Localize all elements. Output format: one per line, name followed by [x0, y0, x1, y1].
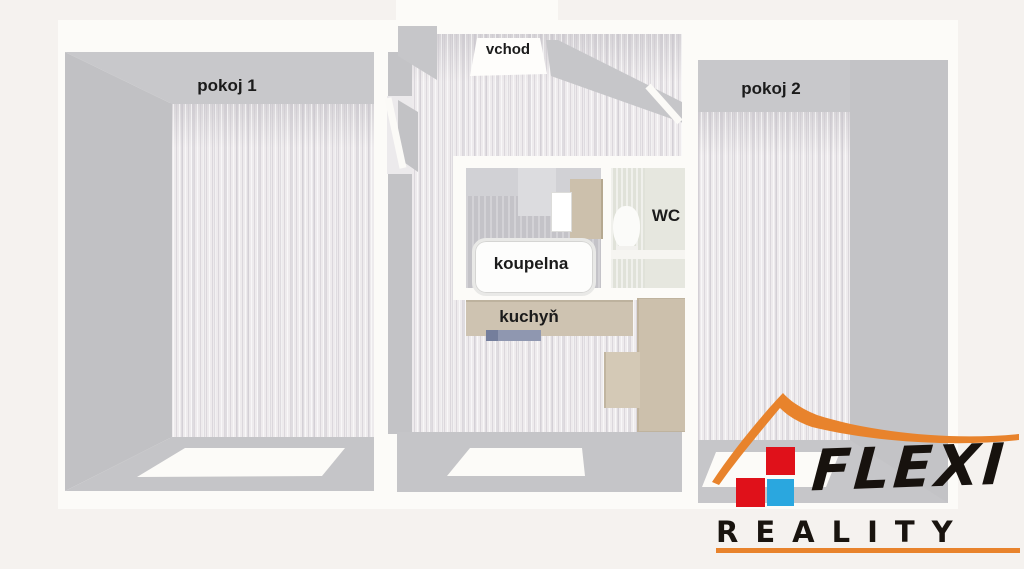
floor-plan-image: pokoj 1 pokoj 2 vchod koupelna WC kuchyň… [0, 0, 1024, 564]
hall-top-wall-right-of-door [546, 40, 686, 124]
logo-text-flexi: FLEXI [809, 432, 1009, 505]
flexi-reality-logo: FLEXI REALITY [690, 385, 1024, 564]
logo-square-blue [767, 479, 794, 506]
logo-square-red-top [766, 447, 795, 475]
pokoj1-left-wall [65, 52, 172, 491]
bathroom-cabinet [570, 179, 603, 239]
kitchen-window [447, 448, 585, 476]
kitchen-low-cabinet [604, 352, 640, 408]
washbasin [551, 192, 572, 232]
room-label-koupelna: koupelna [461, 254, 601, 274]
room-label-pokoj-1: pokoj 1 [157, 76, 297, 96]
room-label-wc: WC [636, 206, 696, 226]
room-label-kuchyn: kuchyň [459, 307, 599, 327]
room-label-vchod: vchod [458, 41, 558, 58]
kitchen-tall-cabinet [637, 298, 685, 432]
wc-shelf [611, 250, 685, 259]
logo-text-reality: REALITY [716, 515, 970, 549]
kitchen-sink [486, 330, 541, 341]
logo-square-red-left [736, 478, 765, 507]
hall-left-wall-top [374, 20, 388, 509]
room-label-pokoj-2: pokoj 2 [701, 79, 841, 99]
